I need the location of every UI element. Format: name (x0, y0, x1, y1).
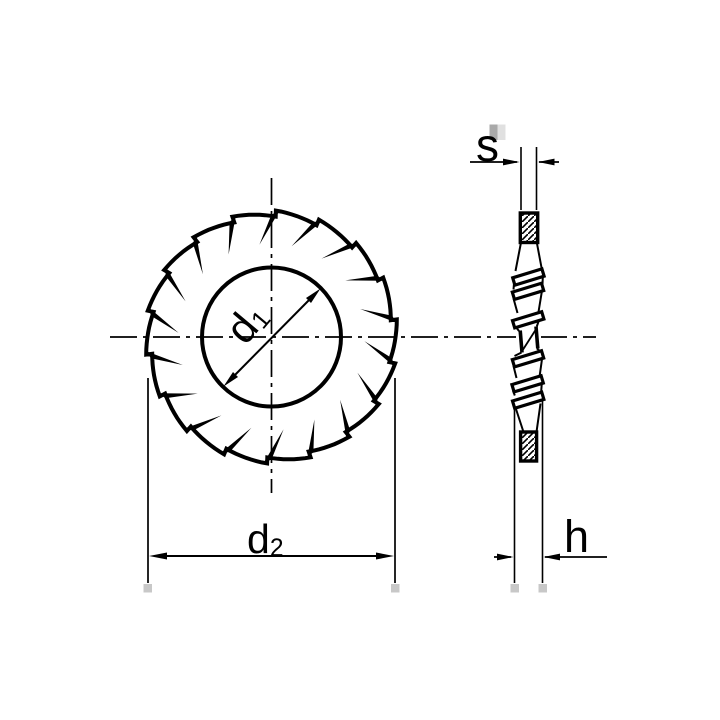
s-arrowhead-left (503, 159, 520, 166)
line-end-marker (391, 584, 400, 593)
tooth-bar (513, 312, 544, 328)
section-hatch-top (520, 213, 537, 243)
h-label: h (564, 514, 589, 559)
h-arrowhead-right (544, 554, 561, 561)
s-label: s (476, 122, 499, 168)
line-end-marker (511, 584, 520, 593)
d2-arrowhead-right (376, 553, 394, 560)
s-arrowhead-right (538, 159, 555, 166)
line-end-marker (539, 584, 548, 593)
tooth-bar (512, 376, 543, 392)
d2-label: d2 (247, 519, 284, 560)
technical-drawing-serrated-lock-washer: d1 d2 s h (0, 0, 720, 720)
h-arrowhead-left (497, 554, 514, 561)
d2-arrowhead-left (149, 553, 167, 560)
line-end-marker (144, 584, 153, 593)
h-dimension (494, 554, 607, 593)
section-hatch-bottom (521, 432, 537, 461)
drawing-canvas (0, 0, 720, 720)
